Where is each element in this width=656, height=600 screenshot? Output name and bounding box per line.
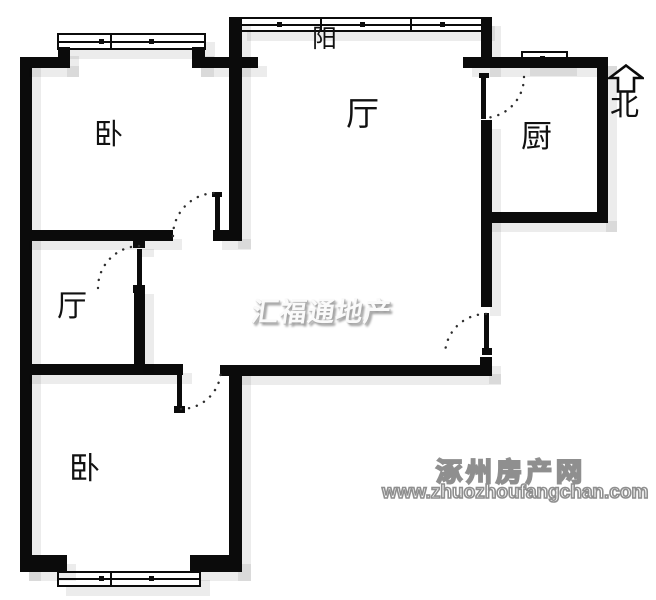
wall-divider-stub: [133, 240, 145, 248]
wall-hall-living-divider: [134, 293, 145, 364]
wall-bedroom-north-top-right: [192, 57, 258, 68]
door-arc-bedroom-south: [181, 369, 221, 409]
door-leaf-bedroom-south: [177, 375, 182, 408]
window-handle: [99, 39, 104, 44]
door-leaf-cap: [174, 406, 185, 413]
room-label-bedroom-south: 卧: [69, 453, 100, 484]
north-arrow-icon: [608, 64, 644, 93]
wall-bedroom-south-bottom-right: [190, 555, 242, 572]
balcony-window: [238, 17, 486, 32]
door-arc-hall: [98, 246, 139, 288]
door-arc-bedroom-north: [173, 193, 216, 236]
room-label-kitchen: 厨: [521, 121, 552, 152]
room-label-hall: 厅: [57, 292, 87, 322]
room-label-living-room: 厅: [346, 97, 379, 130]
wall-hall-top: [20, 230, 173, 241]
window-midline: [59, 578, 199, 580]
wall-bedroom-south-right: [229, 365, 242, 572]
window-midline: [59, 41, 204, 43]
door-arc-living-entry: [445, 314, 486, 355]
door-leaf-kitchen: [481, 77, 486, 119]
wall-outer-left: [20, 57, 32, 572]
door-leaf-cap: [482, 348, 492, 355]
door-leaf-living-entry: [484, 313, 489, 350]
window-divider: [410, 19, 412, 30]
window-handle: [149, 39, 154, 44]
door-leaf-cap: [479, 73, 489, 78]
window-handle: [440, 22, 445, 27]
window-handle: [149, 576, 154, 581]
door-leaf-hall: [137, 249, 142, 286]
wall-bedroom-south-bottom-left: [20, 555, 67, 572]
compass-label: 北: [610, 92, 639, 121]
window-handle: [277, 22, 282, 27]
bedroom-south-window: [57, 571, 201, 587]
door-leaf-bedroom-north: [215, 195, 220, 237]
wall-bedroom-north-right: [229, 17, 242, 240]
door-arc-kitchen: [483, 77, 524, 118]
wall-kitchen-top: [463, 57, 608, 68]
window-handle: [360, 22, 365, 27]
wall-kitchen-bottom: [481, 212, 608, 223]
window-divider: [110, 35, 112, 48]
wall-living-bottom: [220, 365, 492, 376]
door-leaf-cap: [212, 192, 222, 197]
bedroom-north-window: [57, 33, 206, 50]
room-label-bedroom-north: 卧: [94, 121, 123, 150]
window-handle: [99, 576, 104, 581]
wall-window-connector: [58, 47, 70, 68]
wall-kitchen-left-living-right: [481, 120, 492, 307]
room-label-balcony: 阳: [312, 27, 337, 52]
wall-divider-cap: [133, 285, 145, 293]
wall-kitchen-right: [597, 57, 608, 223]
watermark-site-url: www.zhuozhoufangchan.com: [382, 482, 648, 504]
watermark-agency: 汇福通地产: [249, 290, 394, 329]
floorplan-canvas: 阳 厅 厨 卧 厅 卧 北 汇福通地产 涿州房产网 www.zhuozhoufa…: [0, 0, 656, 600]
wall-hall-bottom: [20, 364, 183, 375]
window-divider: [110, 573, 112, 585]
